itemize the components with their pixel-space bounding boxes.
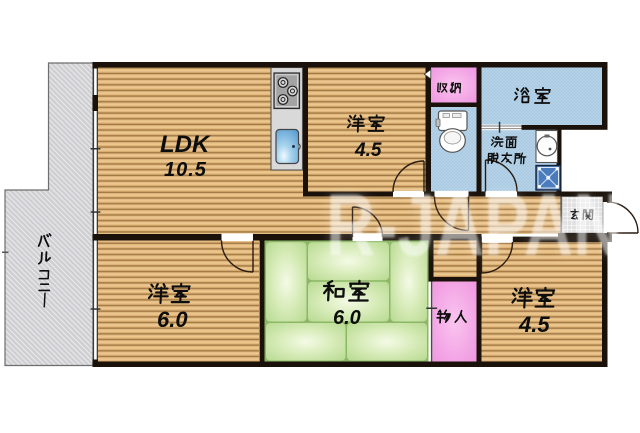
svg-text:6.0: 6.0	[157, 307, 188, 332]
svg-text:LDK: LDK	[160, 131, 211, 158]
svg-text:6.0: 6.0	[333, 307, 361, 329]
svg-text:4.5: 4.5	[354, 140, 382, 161]
svg-text:R-JAPAN: R-JAPAN	[326, 175, 622, 274]
svg-text:4.5: 4.5	[518, 312, 550, 337]
svg-text:10.5: 10.5	[164, 159, 207, 181]
